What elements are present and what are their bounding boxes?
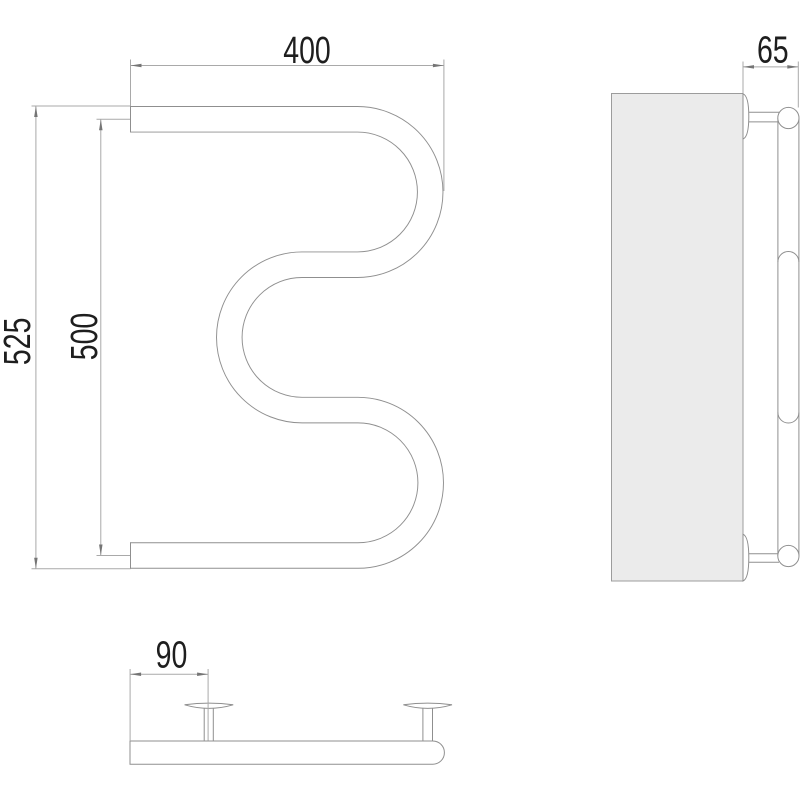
svg-text:400: 400 [283, 30, 331, 72]
svg-text:500: 500 [64, 313, 106, 361]
svg-text:90: 90 [156, 635, 188, 677]
svg-text:65: 65 [757, 30, 789, 72]
svg-text:525: 525 [0, 318, 39, 366]
